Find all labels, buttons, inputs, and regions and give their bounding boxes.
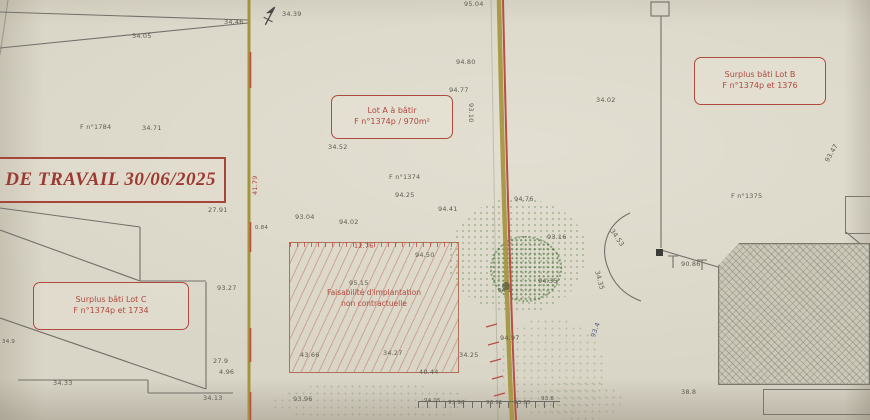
- lot-b-line1: Surplus bâti Lot B: [699, 70, 821, 81]
- measurement-label: 34.71: [142, 125, 162, 132]
- spot-height-label: 93.8: [541, 397, 554, 403]
- measurement-label: 27.91: [208, 207, 228, 214]
- spot-height-label: 94.97: [500, 335, 520, 342]
- parcel-label: F n°1784: [80, 124, 111, 131]
- measurement-label: 0.84: [255, 226, 268, 232]
- spot-height-label: 94.1: [498, 289, 511, 295]
- measurement-label: 34.27: [383, 350, 403, 357]
- measurement-label: 40.44: [419, 369, 439, 376]
- spot-height-label: 95.15: [349, 280, 369, 287]
- lot-a-line1: Lot A à bâtir: [336, 106, 448, 117]
- lot-b-annotation: Surplus bâti Lot B F n°1374p et 1376: [694, 57, 826, 105]
- spot-height-label: 94.02: [339, 219, 359, 226]
- plan-title: DE TRAVAIL 30/06/2025: [5, 169, 216, 191]
- spot-height-label: 94.25: [395, 192, 415, 199]
- measurement-label: 4.96: [219, 369, 234, 376]
- spot-height-label: 93.96: [293, 396, 313, 403]
- measurement-label: 34.25: [459, 352, 479, 359]
- parcel-label: F n°1375: [731, 193, 762, 200]
- lot-a-annotation: Lot A à bâtir F n°1374p / 970m²: [331, 95, 453, 139]
- measurement-label: 34.02: [596, 97, 616, 104]
- spot-height-label: 94.35: [538, 278, 558, 285]
- spot-height-label: 94.80: [456, 59, 476, 66]
- hatch-caption-line1: Faisabilité d'implantation: [290, 287, 458, 298]
- spot-height-label: 93.98: [448, 401, 465, 407]
- spot-height-label: 95.04: [464, 1, 484, 8]
- survey-plan-scan: Faisabilité d'implantation non contractu…: [0, 0, 870, 420]
- building-annex-outline: [763, 389, 870, 415]
- hatch-caption-line2: non contractuelle: [290, 298, 458, 309]
- road-line: [486, 0, 516, 420]
- lot-boundary-olive-line: [249, 0, 251, 420]
- measurement-label: 34.39: [282, 11, 302, 18]
- spot-height-label: 94.76: [514, 196, 534, 203]
- measurement-label: 34.46: [224, 19, 244, 26]
- lot-b-line2: F n°1374p et 1376: [699, 81, 821, 92]
- spot-height-label: 93.27: [217, 285, 237, 292]
- title-cartouche: DE TRAVAIL 30/06/2025: [0, 157, 226, 203]
- measurement-label: 34.13: [203, 395, 223, 402]
- spot-height-label: 94.50: [415, 252, 435, 259]
- measurement-label: 34.52: [328, 144, 348, 151]
- measurement-label: 43.66: [300, 352, 320, 359]
- measurement-label: 34.9: [2, 340, 15, 346]
- spot-height-label: 90.86: [681, 261, 701, 268]
- survey-marker: [656, 249, 663, 256]
- measurement-label: 34.33: [53, 380, 73, 387]
- measurement-label: 34.05: [132, 33, 152, 40]
- spot-height-label: 93.10: [468, 103, 475, 123]
- spot-height-label: 93.04: [295, 214, 315, 221]
- dimension-label: 41.79: [252, 175, 259, 195]
- measurement-label: 38.8: [681, 389, 696, 396]
- spot-height-label: 94.41: [438, 206, 458, 213]
- existing-building-hatched: [718, 243, 870, 385]
- dimension-label: 12.76: [354, 243, 374, 250]
- measurement-label: 27.9: [213, 358, 228, 365]
- lot-c-annotation: Surplus bâti Lot C F n°1374p et 1734: [33, 282, 189, 330]
- spot-height-label: 93.16: [547, 234, 567, 241]
- lot-c-line2: F n°1374p et 1734: [38, 306, 184, 317]
- spot-height-label: 93.91: [486, 401, 503, 407]
- tick-scale: [290, 242, 458, 247]
- north-arrow-icon: [261, 5, 279, 27]
- spot-height-label: 94.05: [424, 399, 441, 405]
- edge-building-outline: [845, 196, 870, 234]
- spot-height-label: 93.85: [514, 401, 531, 407]
- lot-c-line1: Surplus bâti Lot C: [38, 295, 184, 306]
- spot-height-label: 94.77: [449, 87, 469, 94]
- lot-a-line2: F n°1374p / 970m²: [336, 117, 448, 128]
- parcel-label: F n°1374: [389, 174, 420, 181]
